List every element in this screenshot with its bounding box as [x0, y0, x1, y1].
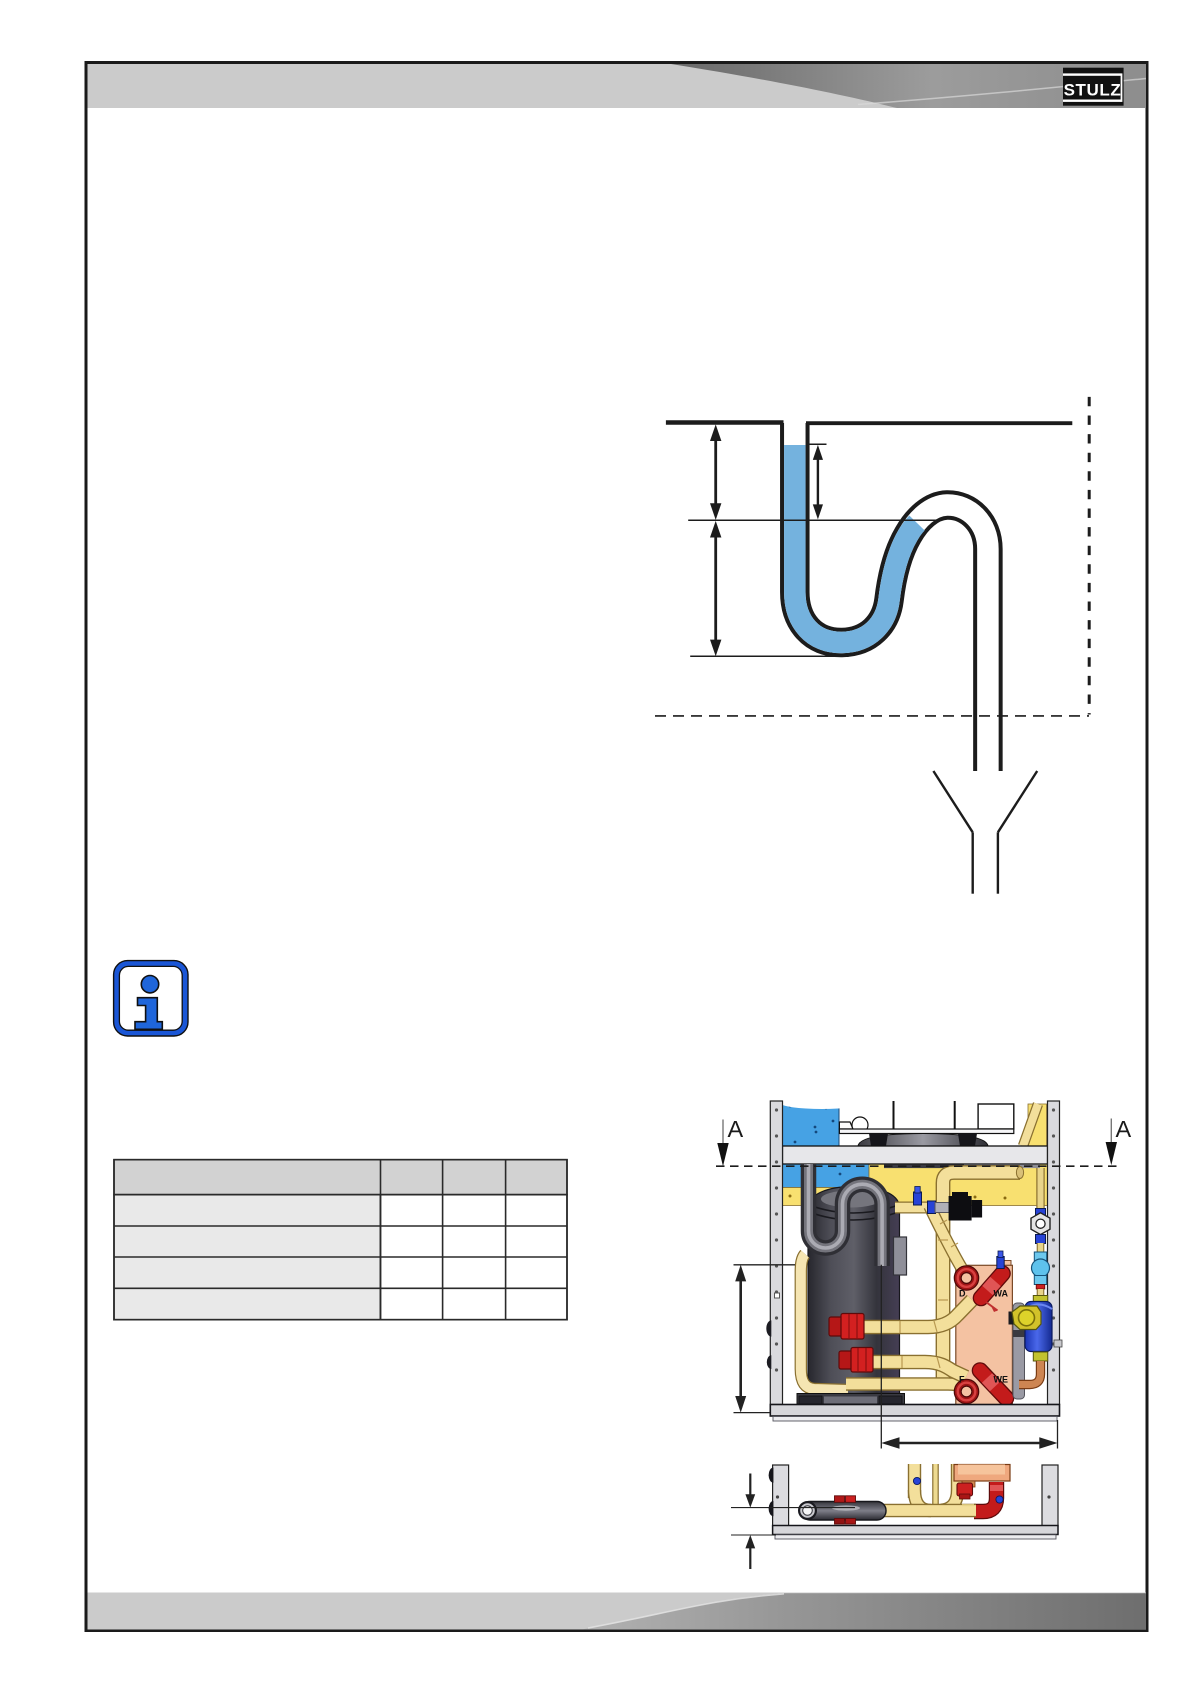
svg-text:STULZ: STULZ: [1064, 81, 1122, 100]
svg-text:F: F: [959, 1375, 965, 1385]
svg-text:A: A: [728, 1116, 744, 1142]
svg-text:A: A: [1116, 1116, 1132, 1142]
svg-text:D: D: [959, 1289, 966, 1299]
svg-text:WE: WE: [994, 1375, 1009, 1385]
svg-text:WA: WA: [994, 1289, 1009, 1299]
